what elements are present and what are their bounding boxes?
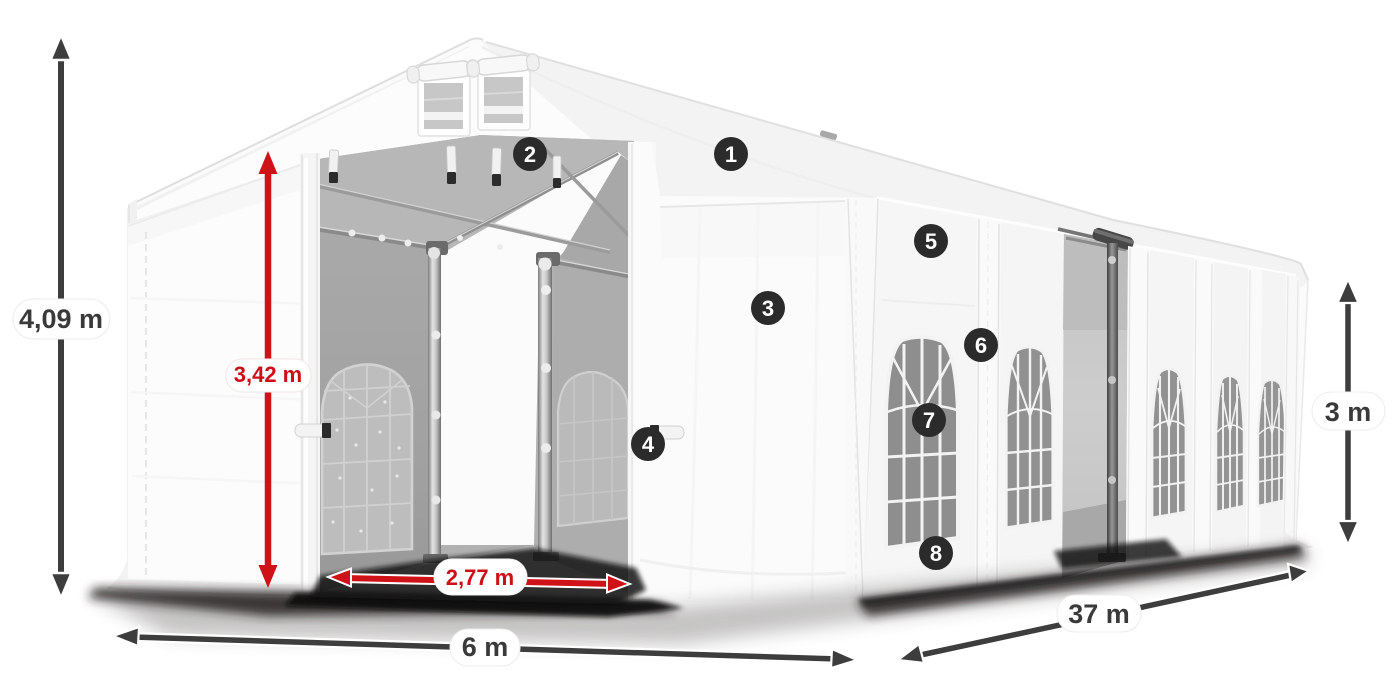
- svg-text:5: 5: [925, 229, 937, 254]
- svg-text:37 m: 37 m: [1068, 599, 1130, 629]
- svg-text:3 m: 3 m: [1325, 397, 1372, 427]
- svg-text:6 m: 6 m: [462, 632, 509, 662]
- svg-text:4,09 m: 4,09 m: [19, 304, 103, 334]
- svg-text:4: 4: [642, 432, 655, 457]
- svg-text:7: 7: [923, 408, 935, 433]
- svg-text:1: 1: [725, 142, 737, 167]
- svg-text:3,42 m: 3,42 m: [234, 362, 303, 387]
- svg-text:6: 6: [975, 333, 987, 358]
- svg-text:3: 3: [762, 296, 774, 321]
- svg-text:8: 8: [930, 541, 942, 566]
- svg-text:2: 2: [524, 142, 536, 167]
- svg-text:2,77 m: 2,77 m: [446, 565, 515, 590]
